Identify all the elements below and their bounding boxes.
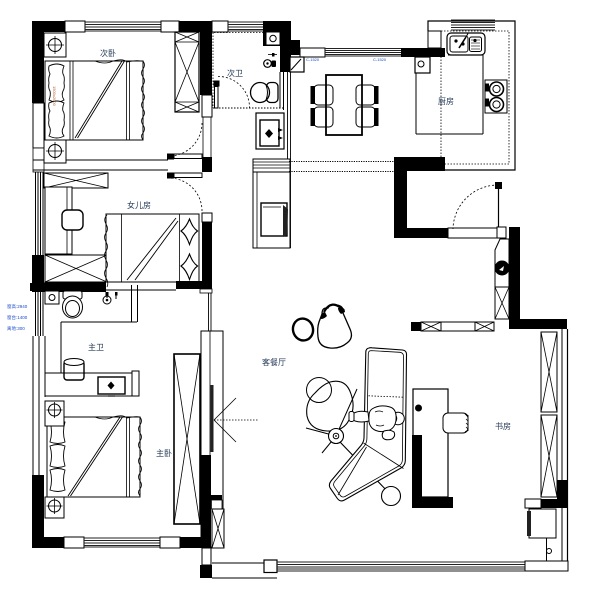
svg-text:窗台:1400: 窗台:1400 xyxy=(7,314,28,321)
svg-text:厨房: 厨房 xyxy=(438,96,454,106)
svg-text:窗高:2940: 窗高:2940 xyxy=(7,303,28,310)
svg-text:女儿房: 女儿房 xyxy=(127,200,151,210)
svg-text:次卧: 次卧 xyxy=(100,48,116,58)
svg-text:客餐厅: 客餐厅 xyxy=(262,357,286,367)
svg-text:主卧: 主卧 xyxy=(156,448,172,458)
svg-text:离地:300: 离地:300 xyxy=(7,325,25,332)
svg-text:1500x2000: 1500x2000 xyxy=(52,86,57,107)
svg-text:书房: 书房 xyxy=(495,421,511,431)
svg-text:主卫: 主卫 xyxy=(88,342,104,352)
svg-text:C-1520: C-1520 xyxy=(373,57,387,62)
svg-text:C-1520: C-1520 xyxy=(306,57,320,62)
svg-text:次卫: 次卫 xyxy=(227,68,243,78)
